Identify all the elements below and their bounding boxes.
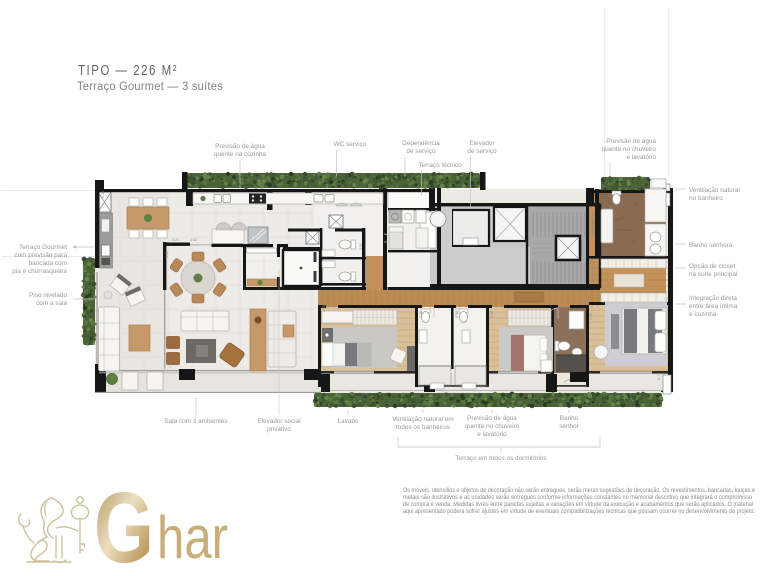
svg-text:WC serviço: WC serviço xyxy=(334,141,367,148)
svg-text:de serviço: de serviço xyxy=(406,148,436,155)
svg-text:4.21: 4.21 xyxy=(172,238,179,242)
svg-text:quente na cozinha: quente na cozinha xyxy=(214,151,267,158)
svg-text:Dependência: Dependência xyxy=(402,140,440,147)
svg-text:G: G xyxy=(94,472,154,576)
svg-text:com a sala: com a sala xyxy=(36,300,67,307)
svg-text:no banheiro: no banheiro xyxy=(689,195,723,202)
svg-text:3.10: 3.10 xyxy=(490,311,494,318)
svg-text:com previsão para: com previsão para xyxy=(14,252,67,259)
svg-text:Previsão de água: Previsão de água xyxy=(606,138,656,145)
svg-text:Opção de closet: Opção de closet xyxy=(689,263,735,270)
svg-text:Terraço técnico: Terraço técnico xyxy=(418,162,462,169)
svg-text:Integração direta: Integração direta xyxy=(689,295,737,302)
svg-text:pia e churrasqueira: pia e churrasqueira xyxy=(12,268,67,275)
svg-text:aqui apresentado poderá sofrer: aqui apresentado poderá sofrer ajustes e… xyxy=(403,508,755,515)
svg-text:Os móveis, utensílios e objeto: Os móveis, utensílios e objetos de decor… xyxy=(403,487,755,494)
svg-text:quente no chuveiro: quente no chuveiro xyxy=(602,146,657,153)
svg-text:e cozinha: e cozinha xyxy=(689,311,717,318)
svg-text:6.09: 6.09 xyxy=(165,251,169,258)
svg-text:3.42: 3.42 xyxy=(190,238,197,242)
svg-text:privativo: privativo xyxy=(267,426,291,433)
svg-text:na suíte principal: na suíte principal xyxy=(689,271,737,278)
svg-text:Terraço em todos os dormitório: Terraço em todos os dormitórios xyxy=(455,455,546,462)
svg-text:TIPO — 226 M²: TIPO — 226 M² xyxy=(78,63,178,79)
svg-text:Piso nivelado: Piso nivelado xyxy=(29,292,67,299)
svg-text:1.52: 1.52 xyxy=(359,243,363,250)
svg-text:todos os banheiros: todos os banheiros xyxy=(396,424,450,431)
svg-text:5.38: 5.38 xyxy=(101,191,105,198)
svg-text:Banho senhora: Banho senhora xyxy=(689,242,733,249)
svg-text:de compra e venda. Medidas liv: de compra e venda. Medidas livres entre … xyxy=(403,501,753,508)
svg-text:Previsão de água: Previsão de água xyxy=(215,143,265,150)
svg-text:Terraço Gourmet: Terraço Gourmet xyxy=(19,244,67,251)
svg-text:2.88: 2.88 xyxy=(322,305,326,312)
svg-text:4.15: 4.15 xyxy=(589,313,593,320)
svg-text:metais são ilustrativos e as u: metais são ilustrativos e as unidades se… xyxy=(403,494,752,501)
svg-text:Ventilação natural: Ventilação natural xyxy=(689,187,740,194)
svg-text:Ventilação natural em: Ventilação natural em xyxy=(392,416,453,423)
svg-text:har: har xyxy=(157,504,228,571)
svg-text:Lavabo: Lavabo xyxy=(338,418,359,425)
svg-text:bancada com: bancada com xyxy=(29,260,67,267)
svg-text:quente no chuveiro: quente no chuveiro xyxy=(465,423,520,430)
svg-text:2.30: 2.30 xyxy=(419,311,423,318)
svg-text:Sala com 3 ambientes: Sala com 3 ambientes xyxy=(164,418,227,425)
svg-text:2.30: 2.30 xyxy=(455,311,459,318)
svg-text:senhor: senhor xyxy=(559,423,579,430)
svg-text:7.44: 7.44 xyxy=(169,361,173,368)
svg-text:Elevador social: Elevador social xyxy=(257,418,300,425)
svg-text:e lavatório: e lavatório xyxy=(627,154,657,161)
svg-text:Terraço Gourmet — 3 suítes: Terraço Gourmet — 3 suítes xyxy=(77,79,223,93)
svg-text:0.75: 0.75 xyxy=(657,373,661,380)
svg-text:e lavatório: e lavatório xyxy=(477,431,507,438)
svg-text:entre área íntima: entre área íntima xyxy=(689,303,738,310)
svg-text:Banho: Banho xyxy=(560,415,579,422)
svg-text:Previsão de água: Previsão de água xyxy=(467,415,517,422)
svg-text:Elevador: Elevador xyxy=(469,140,495,147)
svg-text:de serviço: de serviço xyxy=(467,148,497,155)
